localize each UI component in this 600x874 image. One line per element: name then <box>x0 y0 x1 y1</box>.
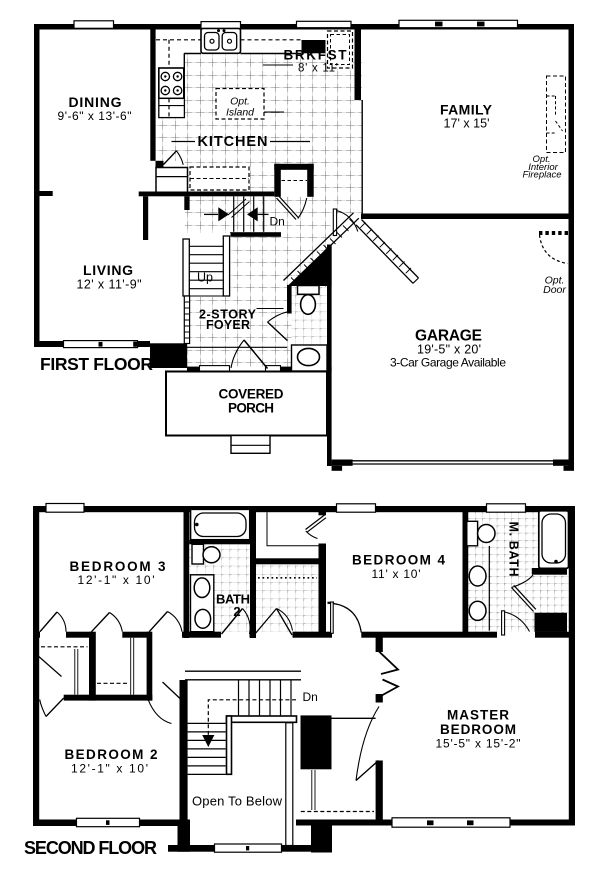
svg-text:Open To Below: Open To Below <box>192 794 283 809</box>
svg-text:COVERED: COVERED <box>219 387 284 402</box>
svg-text:FIRST FLOOR: FIRST FLOOR <box>40 354 153 374</box>
svg-text:BRKFST: BRKFST <box>284 48 348 63</box>
svg-text:BEDROOM 4: BEDROOM 4 <box>352 553 445 568</box>
svg-text:17' x 15': 17' x 15' <box>444 117 490 131</box>
svg-text:Island: Island <box>226 107 255 119</box>
svg-text:BEDROOM: BEDROOM <box>440 722 516 737</box>
svg-text:FAMILY: FAMILY <box>440 102 493 118</box>
svg-text:M. BATH: M. BATH <box>507 522 521 577</box>
svg-text:2: 2 <box>233 604 240 619</box>
svg-text:12'-1" x 10': 12'-1" x 10' <box>71 762 148 776</box>
svg-text:SECOND FLOOR: SECOND FLOOR <box>24 838 157 858</box>
svg-text:Door: Door <box>543 284 566 296</box>
svg-text:Up: Up <box>197 271 213 285</box>
svg-text:15'-5" x 15'-2": 15'-5" x 15'-2" <box>436 737 521 751</box>
svg-text:MASTER: MASTER <box>447 708 509 723</box>
svg-text:LIVING: LIVING <box>83 262 133 278</box>
svg-text:11' x 10': 11' x 10' <box>372 567 421 581</box>
svg-text:19'-5" x 20': 19'-5" x 20' <box>417 343 481 357</box>
svg-text:3-Car Garage Available: 3-Car Garage Available <box>390 356 506 370</box>
svg-text:8' x 11': 8' x 11' <box>298 63 338 75</box>
svg-text:BEDROOM 3: BEDROOM 3 <box>70 559 166 574</box>
svg-text:FOYER: FOYER <box>206 318 250 332</box>
svg-text:Dn: Dn <box>270 215 285 229</box>
svg-text:DINING: DINING <box>69 94 122 110</box>
svg-text:12'-1" x 10': 12'-1" x 10' <box>78 573 155 587</box>
svg-text:12' x 11'-9": 12' x 11'-9" <box>77 278 142 292</box>
svg-text:Dn: Dn <box>303 690 318 704</box>
svg-text:KITCHEN: KITCHEN <box>198 134 268 150</box>
svg-text:Fireplace: Fireplace <box>522 170 561 181</box>
svg-text:9'-6" x 13'-6": 9'-6" x 13'-6" <box>58 109 132 123</box>
svg-text:PORCH: PORCH <box>228 401 274 416</box>
